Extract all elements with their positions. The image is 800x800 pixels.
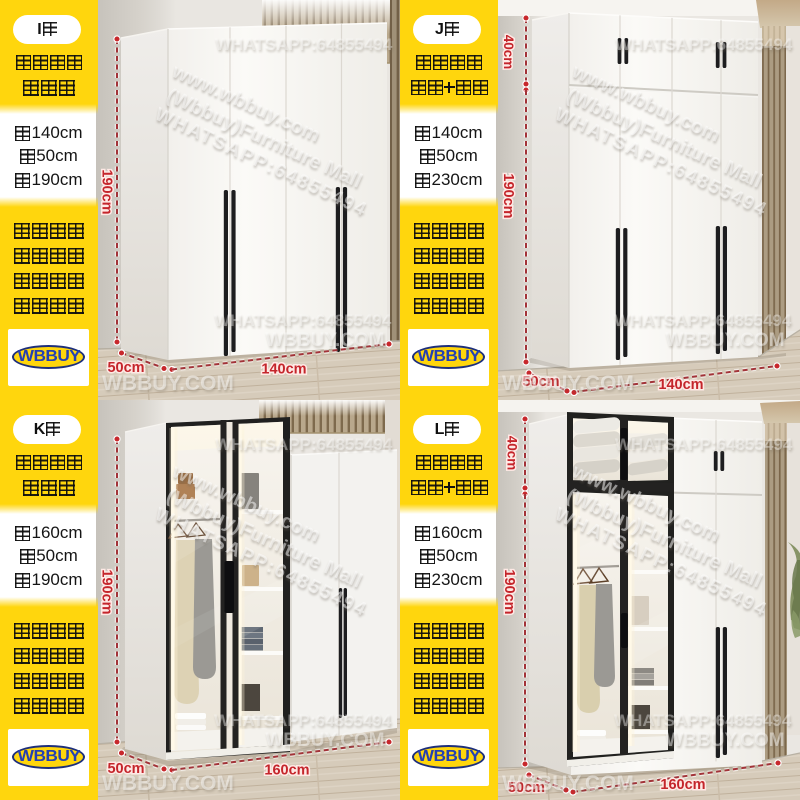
svg-text:140cm: 140cm [658, 377, 703, 393]
svg-text:190cm: 190cm [99, 169, 115, 214]
svg-text:160cm: 160cm [660, 777, 705, 793]
svg-text:40cm: 40cm [504, 436, 519, 471]
svg-text:160cm: 160cm [264, 762, 309, 778]
svg-text:40cm: 40cm [501, 35, 516, 70]
svg-text:190cm: 190cm [99, 569, 115, 614]
svg-text:140cm: 140cm [261, 361, 306, 377]
svg-text:190cm: 190cm [500, 173, 516, 218]
svg-text:190cm: 190cm [501, 569, 517, 614]
